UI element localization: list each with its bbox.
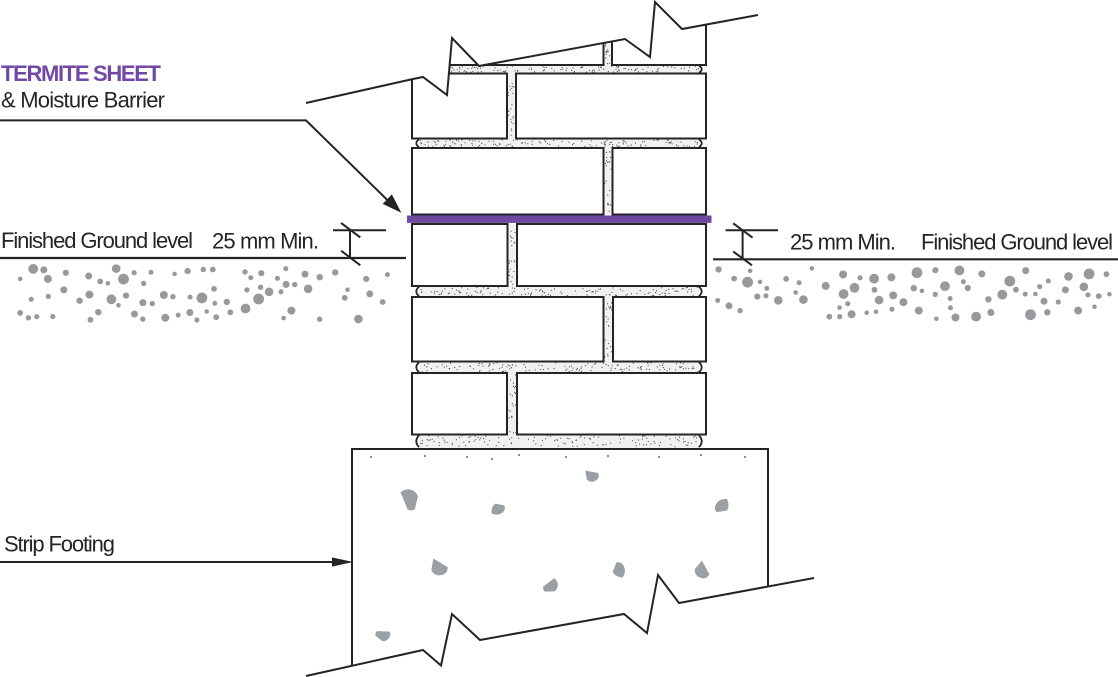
svg-text:Finished Ground level: Finished Ground level [921,230,1113,255]
svg-text:& Moisture Barrier: & Moisture Barrier [1,87,165,112]
svg-text:TERMITE SHEET: TERMITE SHEET [1,61,162,86]
svg-text:Finished Ground level: Finished Ground level [1,228,193,253]
svg-text:Strip Footing: Strip Footing [4,532,115,557]
svg-text:25 mm Min.: 25 mm Min. [212,229,319,254]
svg-text:25 mm Min.: 25 mm Min. [790,230,896,255]
